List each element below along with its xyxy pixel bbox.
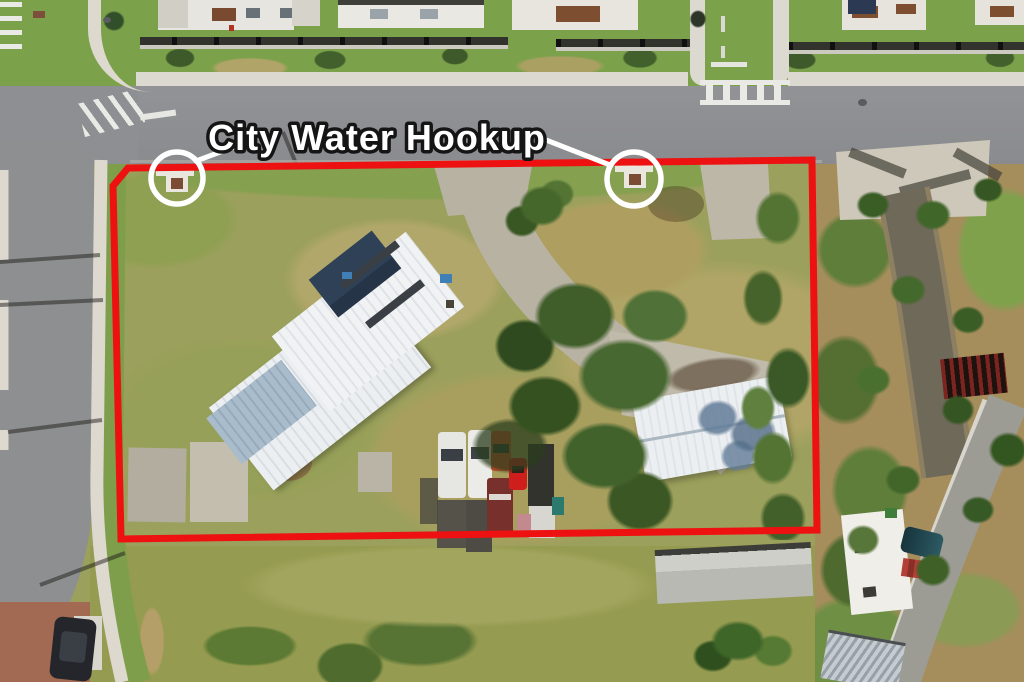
annotation-layer: City Water Hookup	[0, 0, 1024, 682]
aerial-photo: City Water Hookup	[0, 0, 1024, 682]
annotation-label: City Water Hookup	[208, 117, 546, 158]
property-boundary	[113, 160, 817, 539]
